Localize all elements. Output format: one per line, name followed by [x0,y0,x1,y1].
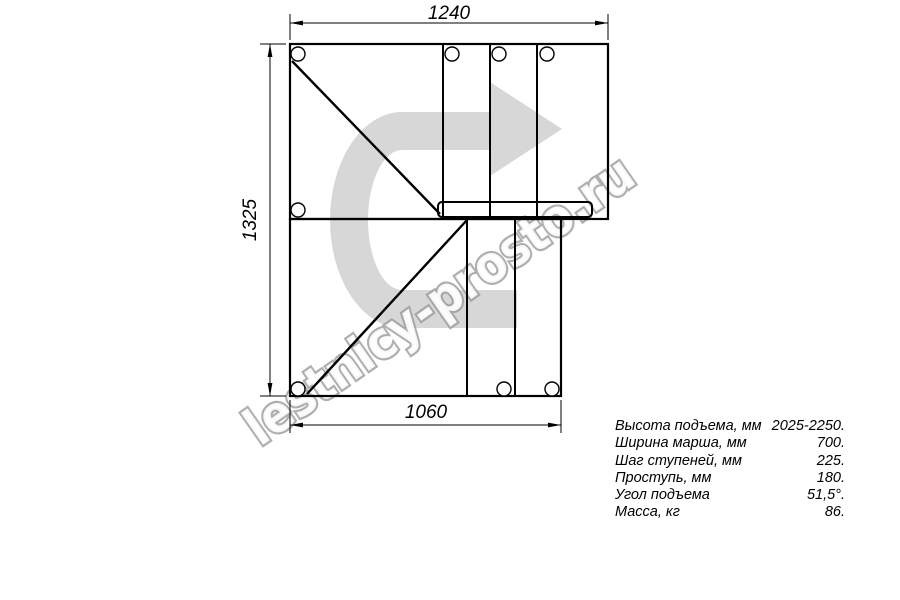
mounting-hole [540,47,554,61]
staircase-drawing-canvas: lestnicy-prosto.ru lestnicy-prosto.ru [0,0,900,600]
spec-row: Проступь, мм 180. [615,470,845,487]
dimension-top: 1240 [290,3,608,40]
spec-row: Ширина марша, мм 700. [615,435,845,452]
spec-value: 51,5°. [807,487,845,504]
spec-row: Высота подъема, мм 2025-2250. [615,418,845,435]
dimension-bottom-value: 1060 [405,402,448,423]
spec-row: Угол подъема 51,5°. [615,487,845,504]
dimension-left-value: 1325 [240,198,261,241]
spec-row: Масса, кг 86. [615,504,845,521]
spec-value: 225. [817,453,845,470]
spec-label: Ширина марша, мм [615,435,747,452]
spec-label: Масса, кг [615,504,680,521]
dimension-left: 1325 [240,44,286,396]
spec-label: Шаг ступеней, мм [615,453,742,470]
dimension-arrow-up-icon [268,44,273,57]
mounting-hole [497,382,511,396]
dimension-arrow-right-icon [595,21,608,26]
spec-value: 180. [817,470,845,487]
mounting-hole [291,203,305,217]
mounting-hole [492,47,506,61]
spec-label: Угол подъема [615,487,710,504]
dimension-left-extension-lines [260,44,286,396]
dimension-top-value: 1240 [428,3,471,24]
spec-label: Высота подъема, мм [615,418,762,435]
mounting-hole [291,47,305,61]
spec-row: Шаг ступеней, мм 225. [615,453,845,470]
mounting-hole [291,382,305,396]
spec-table: Высота подъема, мм 2025-2250. Ширина мар… [615,418,845,522]
spec-value: 86. [825,504,845,521]
dimension-arrow-left-icon [290,21,303,26]
spec-label: Проступь, мм [615,470,711,487]
mounting-hole [545,382,559,396]
spec-value: 700. [817,435,845,452]
spec-value: 2025-2250. [772,418,845,435]
mounting-hole [445,47,459,61]
dimension-arrow-right-icon [548,423,561,428]
